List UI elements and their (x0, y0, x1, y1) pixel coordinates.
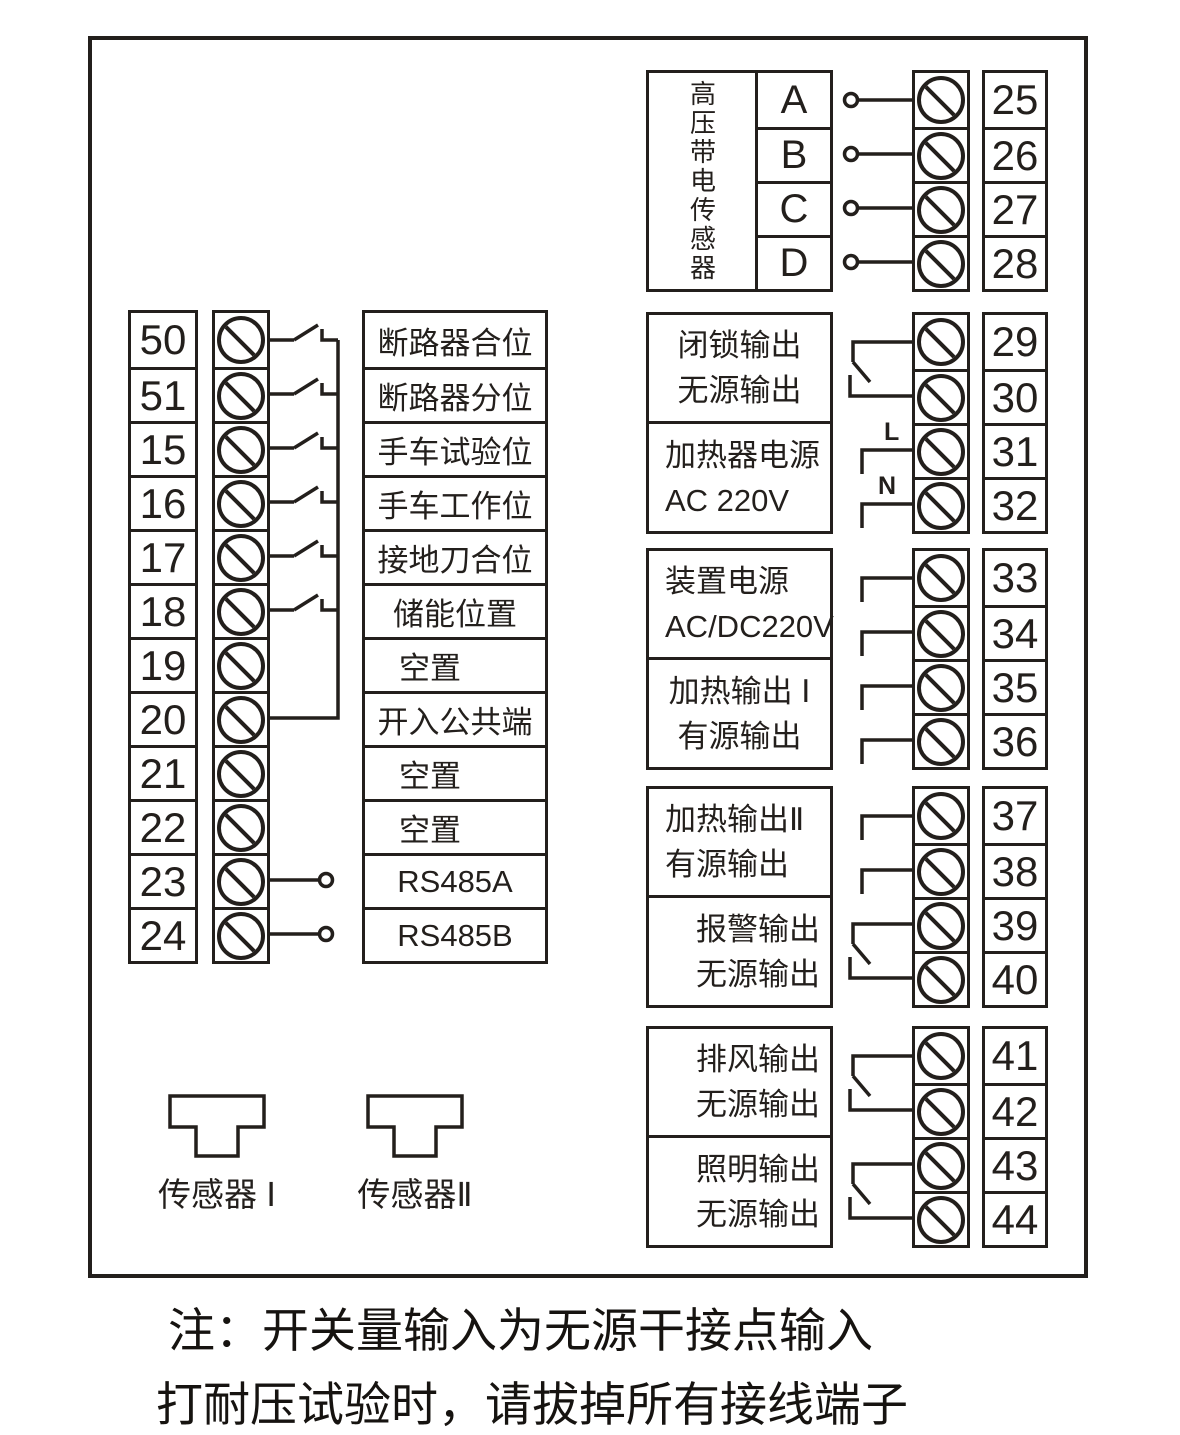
power-stub-N (862, 504, 912, 528)
input-label: 手车试验位 (365, 421, 545, 475)
terminal-numbers-37-40: 37 38 39 40 (982, 786, 1048, 1008)
screw-terminal-icon (217, 316, 265, 364)
output-label-box: 加热输出Ⅱ 有源输出 (646, 786, 833, 898)
phase-label: C (758, 181, 830, 235)
sensor2-connector-icon (366, 1094, 464, 1158)
output-label-line: 排风输出 (649, 1037, 820, 1082)
relay-contact-symbol (850, 924, 912, 978)
input-label: 接地刀合位 (365, 529, 545, 583)
note-line-1: 注：开关量输入为无源干接点输入 (168, 1292, 873, 1361)
screw-terminal-icon (917, 240, 965, 288)
terminal-number: 23 (131, 853, 195, 907)
screw-terminal-icon (917, 848, 965, 896)
input-label: 储能位置 (365, 583, 545, 637)
note-line-2: 打耐压试验时，请拔掉所有接线端子 (156, 1366, 908, 1435)
power-stub (862, 686, 912, 710)
phase-label: B (758, 127, 830, 181)
terminal-number: 32 (985, 477, 1045, 531)
left-screw-terminal-strip (212, 310, 270, 964)
wiring-37-40 (832, 786, 912, 1008)
terminal-number: 28 (985, 235, 1045, 289)
screw-terminal-icon (217, 372, 265, 420)
wiring-41-44 (832, 1026, 912, 1248)
output-label-line: AC/DC220V (665, 604, 830, 649)
terminal-number: 43 (985, 1137, 1045, 1191)
output-label-box: 排风输出 无源输出 (646, 1026, 833, 1138)
terminal-number: 44 (985, 1191, 1045, 1245)
phase-leads (845, 94, 913, 269)
power-stub (862, 578, 912, 602)
screw-terminal-icon (217, 696, 265, 744)
terminal-number: 34 (985, 605, 1045, 659)
screw-strip-29-32 (912, 312, 970, 534)
screw-terminal-icon (917, 374, 965, 422)
screw-terminal-icon (917, 482, 965, 530)
line-mark-L: L (884, 418, 899, 447)
sensor2-label: 传感器Ⅱ (340, 1168, 490, 1216)
terminal-number: 18 (131, 583, 195, 637)
screw-terminal-icon (917, 956, 965, 1004)
output-label-line: 装置电源 (665, 559, 830, 604)
terminal-numbers-33-36: 33 34 35 36 (982, 548, 1048, 770)
hv-sensor-box: 高压带电传感器 (646, 70, 758, 292)
input-label: 空置 (365, 745, 545, 799)
screw-terminal-icon (917, 132, 965, 180)
terminal-number: 22 (131, 799, 195, 853)
power-stub (862, 870, 912, 894)
output-label-box: 照明输出 无源输出 (646, 1135, 833, 1248)
output-label-line: 无源输出 (649, 1082, 820, 1127)
sensor1-label: 传感器 Ⅰ (142, 1168, 292, 1216)
common-bus-wire (268, 340, 338, 718)
screw-terminal-icon (217, 858, 265, 906)
output-label-line: 无源输出 (649, 952, 820, 997)
output-label-box: 报警输出 无源输出 (646, 895, 833, 1008)
screw-terminal-icon (217, 804, 265, 852)
terminal-number: 37 (985, 789, 1045, 843)
screw-terminal-icon (917, 318, 965, 366)
terminal-numbers-41-44: 41 42 43 44 (982, 1026, 1048, 1248)
screw-terminal-icon (917, 554, 965, 602)
input-label: 开入公共端 (365, 691, 545, 745)
power-stub (862, 740, 912, 764)
output-label-line: 报警输出 (649, 907, 820, 952)
screw-terminal-icon (917, 610, 965, 658)
terminal-number: 36 (985, 713, 1045, 767)
terminal-number: 35 (985, 659, 1045, 713)
input-label: 断路器合位 (365, 313, 545, 367)
left-terminal-number-column: 50 51 15 16 17 18 19 20 21 22 23 24 (128, 310, 198, 964)
phase-label: D (758, 235, 830, 289)
terminal-number: 51 (131, 367, 195, 421)
output-label-line: 闭锁输出 (649, 323, 830, 368)
output-label-line: 加热输出 Ⅰ (649, 669, 830, 714)
switch-contact-symbols (268, 325, 338, 610)
relay-contact-symbol (850, 1056, 912, 1110)
screw-terminal-icon (217, 534, 265, 582)
terminal-number: 20 (131, 691, 195, 745)
terminal-number: 39 (985, 897, 1045, 951)
terminal-number: 15 (131, 421, 195, 475)
screw-terminal-icon (917, 718, 965, 766)
line-mark-N: N (878, 472, 896, 501)
hv-sensor-title: 高压带电传感器 (684, 80, 721, 283)
screw-terminal-icon (217, 912, 265, 960)
wiring-29-32 (832, 312, 912, 534)
terminal-number: 42 (985, 1083, 1045, 1137)
output-label-line: 无源输出 (649, 368, 830, 413)
terminal-number: 26 (985, 127, 1045, 181)
terminal-number: 30 (985, 369, 1045, 423)
terminal-number: 40 (985, 951, 1045, 1005)
input-label: 空置 (365, 637, 545, 691)
terminal-number: 25 (985, 73, 1045, 127)
output-label-line: 无源输出 (649, 1192, 820, 1237)
screw-terminal-icon (917, 186, 965, 234)
phase-label: A (758, 73, 830, 127)
input-label: RS485B (365, 907, 545, 961)
terminal-number: 19 (131, 637, 195, 691)
screw-terminal-icon (217, 750, 265, 798)
sensor1-connector-icon (168, 1094, 266, 1158)
screw-strip-33-36 (912, 548, 970, 770)
screw-strip-37-40 (912, 786, 970, 1008)
output-label-box: 闭锁输出 无源输出 (646, 312, 833, 424)
output-label-line: AC 220V (665, 478, 830, 523)
screw-strip-25-28 (912, 70, 970, 292)
terminal-number: 31 (985, 423, 1045, 477)
screw-terminal-icon (917, 1032, 965, 1080)
screw-terminal-icon (917, 1196, 965, 1244)
output-label-box: 加热输出 Ⅰ 有源输出 (646, 657, 833, 770)
terminal-number: 38 (985, 843, 1045, 897)
wiring-diagram-page: { "colors": { "ink": "#231f1c", "backgro… (0, 0, 1180, 1432)
power-stub-L (862, 450, 912, 474)
power-stub (862, 632, 912, 656)
output-label-line: 有源输出 (665, 842, 830, 887)
terminal-numbers-25-28: 25 26 27 28 (982, 70, 1048, 292)
output-label-line: 加热输出Ⅱ (665, 797, 830, 842)
digital-input-wiring (268, 310, 362, 964)
output-label-box: 加热器电源 AC 220V (646, 421, 833, 534)
terminal-number: 17 (131, 529, 195, 583)
screw-terminal-icon (917, 76, 965, 124)
input-label: 空置 (365, 799, 545, 853)
output-label-line: 有源输出 (649, 714, 830, 759)
rs485a-node (320, 874, 333, 887)
left-function-label-column: 断路器合位 断路器分位 手车试验位 手车工作位 接地刀合位 储能位置 空置 开入… (362, 310, 548, 964)
wiring-33-36 (832, 548, 912, 770)
input-label: 手车工作位 (365, 475, 545, 529)
hv-phase-column: A B C D (755, 70, 833, 292)
screw-terminal-icon (917, 1142, 965, 1190)
screw-strip-41-44 (912, 1026, 970, 1248)
screw-terminal-icon (917, 902, 965, 950)
hv-phase-wiring (833, 70, 912, 292)
terminal-number: 29 (985, 315, 1045, 369)
relay-contact-symbol (850, 1164, 912, 1218)
screw-terminal-icon (917, 664, 965, 712)
terminal-number: 21 (131, 745, 195, 799)
output-label-line: 照明输出 (649, 1147, 820, 1192)
screw-terminal-icon (217, 588, 265, 636)
screw-terminal-icon (217, 642, 265, 690)
terminal-number: 16 (131, 475, 195, 529)
screw-terminal-icon (917, 428, 965, 476)
terminal-number: 41 (985, 1029, 1045, 1083)
terminal-number: 50 (131, 313, 195, 367)
input-label: 断路器分位 (365, 367, 545, 421)
screw-terminal-icon (217, 480, 265, 528)
relay-contact-symbol (850, 342, 912, 396)
terminal-number: 24 (131, 907, 195, 961)
screw-terminal-icon (217, 426, 265, 474)
terminal-number: 33 (985, 551, 1045, 605)
input-label: RS485A (365, 853, 545, 907)
rs485b-node (320, 928, 333, 941)
output-label-line: 加热器电源 (665, 433, 830, 478)
screw-terminal-icon (917, 792, 965, 840)
terminal-numbers-29-32: 29 30 31 32 (982, 312, 1048, 534)
output-label-box: 装置电源 AC/DC220V (646, 548, 833, 660)
screw-terminal-icon (917, 1088, 965, 1136)
power-stub (862, 816, 912, 840)
terminal-number: 27 (985, 181, 1045, 235)
